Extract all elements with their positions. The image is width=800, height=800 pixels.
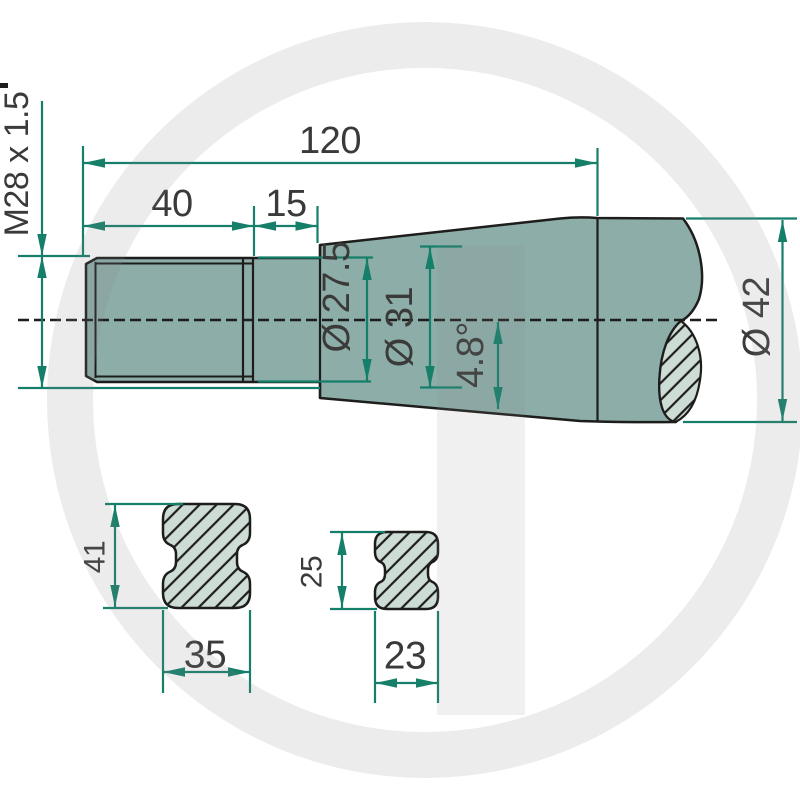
label-section-right-height: 25 bbox=[296, 556, 329, 588]
cross-section-large-profile bbox=[163, 504, 250, 608]
cross-section-large bbox=[103, 504, 250, 693]
label-cone-angle: 4.8° bbox=[450, 322, 492, 388]
label-neck-diameter: Ø 27.5 bbox=[316, 241, 358, 352]
technical-drawing-page: 120 40 15 M28 x 1.5 Ø 27.5 Ø 31 4.8° Ø 4… bbox=[0, 0, 800, 800]
label-thread-length: 40 bbox=[151, 183, 192, 225]
label-shaft-diameter: Ø 42 bbox=[736, 277, 778, 357]
label-neck-length: 15 bbox=[265, 183, 306, 225]
label-thread-spec: M28 x 1.5 bbox=[0, 92, 36, 237]
label-section-left-width: 35 bbox=[184, 634, 226, 677]
label-section-right-width: 23 bbox=[384, 635, 426, 678]
label-overall-length: 120 bbox=[299, 120, 361, 162]
side-view bbox=[18, 217, 719, 422]
label-section-left-height: 41 bbox=[79, 541, 112, 573]
technical-drawing: 120 40 15 M28 x 1.5 Ø 27.5 Ø 31 4.8° Ø 4… bbox=[0, 0, 800, 800]
cross-section-small-profile bbox=[375, 532, 438, 609]
edge-artifact-mark bbox=[0, 83, 8, 88]
label-cone-diameter: Ø 31 bbox=[379, 287, 421, 367]
